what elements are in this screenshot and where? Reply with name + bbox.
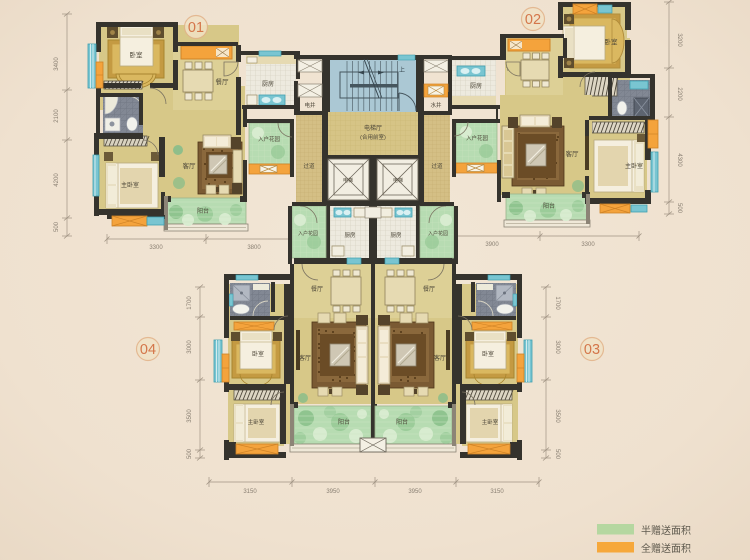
svg-text:3300: 3300 bbox=[149, 245, 163, 251]
svg-text:01: 01 bbox=[188, 20, 204, 36]
svg-text:500: 500 bbox=[554, 449, 560, 460]
svg-text:电梯: 电梯 bbox=[343, 177, 353, 184]
svg-text:3400: 3400 bbox=[54, 57, 60, 71]
svg-text:餐厅: 餐厅 bbox=[311, 285, 323, 293]
svg-text:厨房: 厨房 bbox=[262, 80, 274, 88]
svg-text:3000: 3000 bbox=[187, 340, 193, 354]
svg-text:4200: 4200 bbox=[54, 173, 60, 187]
svg-text:1700: 1700 bbox=[554, 296, 560, 310]
svg-text:上: 上 bbox=[399, 66, 405, 74]
svg-text:3000: 3000 bbox=[554, 340, 560, 354]
svg-text:主卧室: 主卧室 bbox=[121, 181, 139, 189]
svg-text:入户花园: 入户花园 bbox=[428, 230, 448, 237]
svg-text:水井: 水井 bbox=[430, 101, 442, 109]
svg-text:过道: 过道 bbox=[303, 162, 315, 170]
svg-text:2100: 2100 bbox=[54, 109, 60, 123]
svg-text:入户花园: 入户花园 bbox=[466, 134, 489, 142]
svg-text:餐厅: 餐厅 bbox=[216, 77, 230, 86]
svg-text:3950: 3950 bbox=[326, 489, 340, 495]
svg-text:客厅: 客厅 bbox=[299, 354, 311, 362]
svg-text:过道: 过道 bbox=[431, 162, 443, 170]
svg-text:卧室: 卧室 bbox=[252, 350, 264, 358]
svg-text:主卧室: 主卧室 bbox=[482, 418, 499, 426]
svg-text:主卧室: 主卧室 bbox=[625, 162, 643, 170]
svg-text:电梯: 电梯 bbox=[393, 177, 403, 184]
svg-text:3200: 3200 bbox=[676, 33, 682, 47]
svg-text:3150: 3150 bbox=[490, 489, 504, 495]
svg-text:3500: 3500 bbox=[187, 409, 193, 423]
svg-text:卧室: 卧室 bbox=[605, 37, 619, 46]
svg-text:阳台: 阳台 bbox=[338, 418, 350, 426]
svg-text:全赠送面积: 全赠送面积 bbox=[641, 542, 691, 555]
svg-text:阳台: 阳台 bbox=[197, 207, 209, 215]
svg-text:客厅: 客厅 bbox=[434, 354, 446, 362]
svg-text:3300: 3300 bbox=[581, 242, 595, 248]
svg-text:厨房: 厨房 bbox=[344, 231, 356, 239]
svg-text:客厅: 客厅 bbox=[566, 149, 580, 158]
svg-text:02: 02 bbox=[525, 12, 541, 28]
svg-text:3500: 3500 bbox=[554, 409, 560, 423]
svg-text:餐厅: 餐厅 bbox=[423, 285, 435, 293]
svg-text:500: 500 bbox=[187, 448, 193, 459]
svg-text:电梯厅: 电梯厅 bbox=[364, 124, 382, 132]
svg-text:厨房: 厨房 bbox=[390, 231, 402, 239]
svg-text:半赠送面积: 半赠送面积 bbox=[641, 524, 691, 537]
svg-text:厨房: 厨房 bbox=[470, 82, 482, 90]
svg-text:3800: 3800 bbox=[247, 245, 261, 251]
svg-text:03: 03 bbox=[584, 342, 600, 358]
svg-text:(合用前室): (合用前室) bbox=[360, 133, 386, 141]
svg-text:电井: 电井 bbox=[304, 101, 316, 109]
svg-text:卧室: 卧室 bbox=[482, 350, 494, 358]
svg-text:客厅: 客厅 bbox=[183, 161, 197, 170]
svg-text:卧室: 卧室 bbox=[130, 50, 144, 59]
svg-text:3150: 3150 bbox=[243, 489, 257, 495]
svg-text:2200: 2200 bbox=[676, 87, 682, 101]
svg-text:500: 500 bbox=[54, 221, 60, 232]
svg-text:3950: 3950 bbox=[408, 489, 422, 495]
svg-text:入户花园: 入户花园 bbox=[258, 135, 281, 143]
svg-text:4300: 4300 bbox=[676, 153, 682, 167]
svg-text:04: 04 bbox=[140, 342, 156, 358]
svg-text:3900: 3900 bbox=[485, 242, 499, 248]
svg-text:500: 500 bbox=[676, 203, 682, 214]
svg-text:入户花园: 入户花园 bbox=[298, 230, 318, 237]
svg-text:阳台: 阳台 bbox=[543, 202, 555, 210]
svg-text:1700: 1700 bbox=[187, 296, 193, 310]
svg-text:主卧室: 主卧室 bbox=[248, 418, 265, 426]
svg-text:阳台: 阳台 bbox=[396, 418, 408, 426]
